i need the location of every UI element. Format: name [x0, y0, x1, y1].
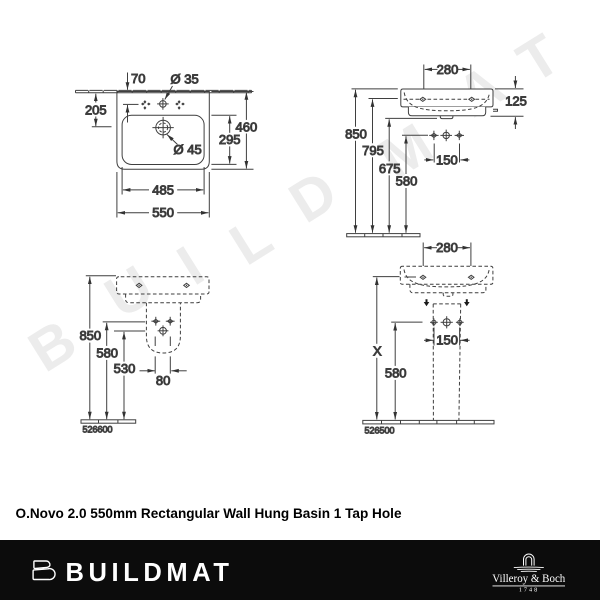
svg-text:150: 150 [436, 333, 458, 348]
svg-text:485: 485 [152, 182, 174, 197]
svg-text:580: 580 [396, 174, 418, 189]
svg-text:205: 205 [85, 103, 107, 118]
svg-text:Ø 35: Ø 35 [171, 72, 199, 87]
svg-text:U: U [94, 253, 164, 330]
svg-text:70: 70 [131, 71, 145, 86]
svg-text:526600: 526600 [83, 424, 113, 434]
svg-text:280: 280 [436, 240, 458, 255]
svg-text:280: 280 [437, 62, 459, 77]
svg-text:150: 150 [436, 152, 458, 167]
svg-text:L: L [219, 204, 283, 278]
svg-text:T: T [506, 22, 570, 96]
svg-text:1748: 1748 [519, 587, 539, 594]
svg-text:530: 530 [114, 361, 136, 376]
svg-text:125: 125 [505, 93, 527, 108]
svg-text:X: X [373, 343, 382, 358]
svg-text:550: 550 [152, 205, 174, 220]
svg-text:850: 850 [79, 328, 101, 343]
svg-text:D: D [278, 158, 348, 235]
svg-text:BUILDMAT: BUILDMAT [66, 559, 234, 587]
svg-text:795: 795 [362, 143, 384, 158]
svg-text:295: 295 [219, 132, 241, 147]
svg-text:O.Novo 2.0 550mm Rectangular W: O.Novo 2.0 550mm Rectangular Wall Hung B… [16, 506, 402, 521]
svg-text:526500: 526500 [365, 426, 395, 436]
svg-text:850: 850 [345, 126, 367, 141]
svg-text:460: 460 [236, 119, 258, 134]
svg-text:80: 80 [156, 373, 170, 388]
svg-text:580: 580 [385, 365, 407, 380]
svg-text:Villeroy & Boch: Villeroy & Boch [492, 571, 565, 585]
svg-text:B: B [18, 307, 88, 384]
svg-text:580: 580 [96, 345, 118, 360]
svg-text:I: I [166, 234, 214, 298]
